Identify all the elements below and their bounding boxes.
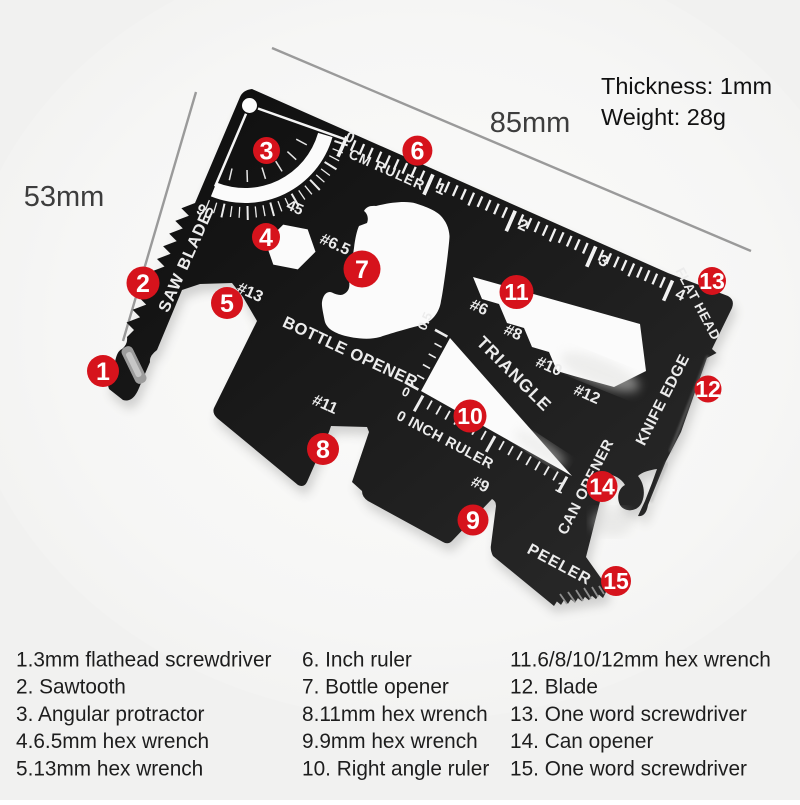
svg-text:4: 4 [259,224,273,252]
svg-text:9: 9 [466,507,480,535]
svg-text:10. Right angle ruler: 10. Right angle ruler [302,757,489,780]
svg-text:15: 15 [603,568,629,594]
svg-text:53mm: 53mm [24,181,105,213]
svg-text:15. One word screwdriver: 15. One word screwdriver [510,757,747,780]
svg-text:11: 11 [504,279,529,305]
svg-text:1.3mm flathead screwdriver: 1.3mm flathead screwdriver [16,649,272,672]
svg-text:14: 14 [589,474,615,500]
svg-text:6. Inch ruler: 6. Inch ruler [302,649,412,672]
svg-text:3: 3 [260,137,274,165]
svg-text:8: 8 [316,436,330,464]
svg-text:4.6.5mm hex wrench: 4.6.5mm hex wrench [16,730,209,753]
svg-text:13: 13 [699,268,725,294]
svg-text:3. Angular protractor: 3. Angular protractor [16,703,205,726]
svg-text:14. Can opener: 14. Can opener [510,730,653,753]
svg-text:10: 10 [457,403,483,429]
svg-text:12. Blade: 12. Blade [510,676,598,699]
svg-text:7. Bottle opener: 7. Bottle opener [302,676,449,699]
svg-text:7: 7 [355,256,369,284]
svg-text:2. Sawtooth: 2. Sawtooth [16,676,126,699]
svg-text:13. One word screwdriver: 13. One word screwdriver [510,703,747,726]
svg-text:11.6/8/10/12mm hex wrench: 11.6/8/10/12mm hex wrench [510,649,771,672]
svg-text:5.13mm hex wrench: 5.13mm hex wrench [16,757,203,780]
svg-text:6: 6 [410,138,424,166]
svg-text:9.9mm hex wrench: 9.9mm hex wrench [302,730,478,753]
svg-text:Weight: 28g: Weight: 28g [601,104,726,130]
svg-text:1: 1 [96,358,110,386]
svg-text:5: 5 [220,290,234,318]
svg-text:12: 12 [695,376,721,402]
svg-text:2: 2 [136,270,150,298]
svg-text:85mm: 85mm [490,107,571,139]
svg-text:Thickness: 1mm: Thickness: 1mm [601,73,772,99]
svg-text:8.11mm hex wrench: 8.11mm hex wrench [302,703,488,726]
